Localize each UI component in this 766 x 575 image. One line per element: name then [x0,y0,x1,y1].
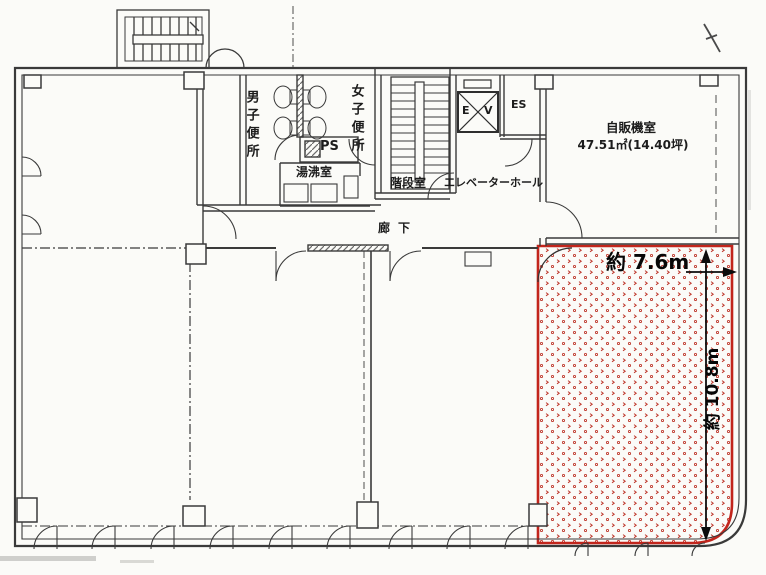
label-mens-toilet: 男子便所 [244,90,258,162]
label-vending-room-area: 47.51㎡(14.40坪) [571,139,695,152]
label-vending-room: 自販機室 [588,121,674,134]
stair-treads [391,77,449,189]
label-corridor: 廊下 [378,222,418,235]
label-pipe-shaft: PS [320,140,339,154]
exterior-stair [117,6,293,68]
label-es-shaft: ES [511,99,526,111]
label-stairwell: 階段室 [390,177,426,190]
label-width-dimension: 約 7.6m [606,252,689,273]
floorplan-scan: 男子便所 女子便所 PS 湯沸室 階段室 エレベーターホール E V ES 自販… [0,0,766,575]
label-elevator-hall: エレベーターホール [444,177,543,189]
scan-artifact [704,24,720,52]
label-height-dimension: 約 10.8m [705,334,727,444]
left-windows [22,157,41,234]
floorplan-linework [0,0,766,575]
label-elevator-v: V [484,105,493,117]
label-hot-water-room: 湯沸室 [296,166,332,179]
label-womens-toilet: 女子便所 [349,84,363,156]
label-elevator-e: E [462,105,470,117]
